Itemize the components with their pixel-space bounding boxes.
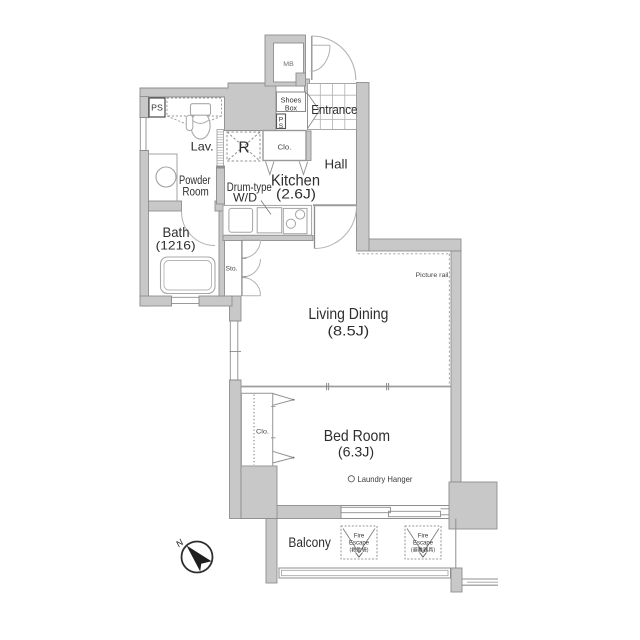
svg-text:Living Dining: Living Dining	[308, 306, 388, 323]
svg-text:Laundry Hanger: Laundry Hanger	[358, 474, 413, 484]
svg-text:Lav.: Lav.	[191, 139, 214, 153]
svg-text:Escape: Escape	[413, 541, 434, 547]
svg-text:Escape: Escape	[349, 541, 370, 547]
svg-text:(救助袋): (救助袋)	[349, 546, 368, 554]
svg-text:Powder: Powder	[179, 175, 211, 187]
svg-text:(1216): (1216)	[156, 238, 196, 252]
svg-text:Fire: Fire	[354, 534, 365, 540]
svg-text:(6.3J): (6.3J)	[338, 445, 374, 460]
svg-text:Picture rail: Picture rail	[416, 272, 450, 279]
svg-text:Balcony: Balcony	[288, 535, 331, 550]
svg-text:Clo.: Clo.	[256, 429, 269, 436]
svg-text:(8.5J): (8.5J)	[328, 324, 370, 339]
svg-text:(避難器具): (避難器具)	[411, 546, 435, 554]
svg-text:Fire: Fire	[418, 534, 429, 540]
svg-text:Box: Box	[285, 103, 298, 112]
svg-text:S: S	[279, 123, 284, 130]
svg-text:Hall: Hall	[325, 156, 348, 171]
svg-text:Entrance: Entrance	[311, 102, 357, 117]
svg-text:Sto.: Sto.	[226, 265, 238, 272]
svg-text:Clo.: Clo.	[278, 145, 292, 152]
svg-text:Room: Room	[182, 186, 209, 198]
svg-text:PS: PS	[151, 103, 163, 113]
svg-text:MB: MB	[283, 61, 294, 68]
svg-text:Bed Room: Bed Room	[324, 428, 390, 445]
svg-text:W/D: W/D	[233, 190, 257, 204]
svg-text:(2.6J): (2.6J)	[276, 187, 316, 202]
svg-text:R: R	[238, 140, 249, 157]
